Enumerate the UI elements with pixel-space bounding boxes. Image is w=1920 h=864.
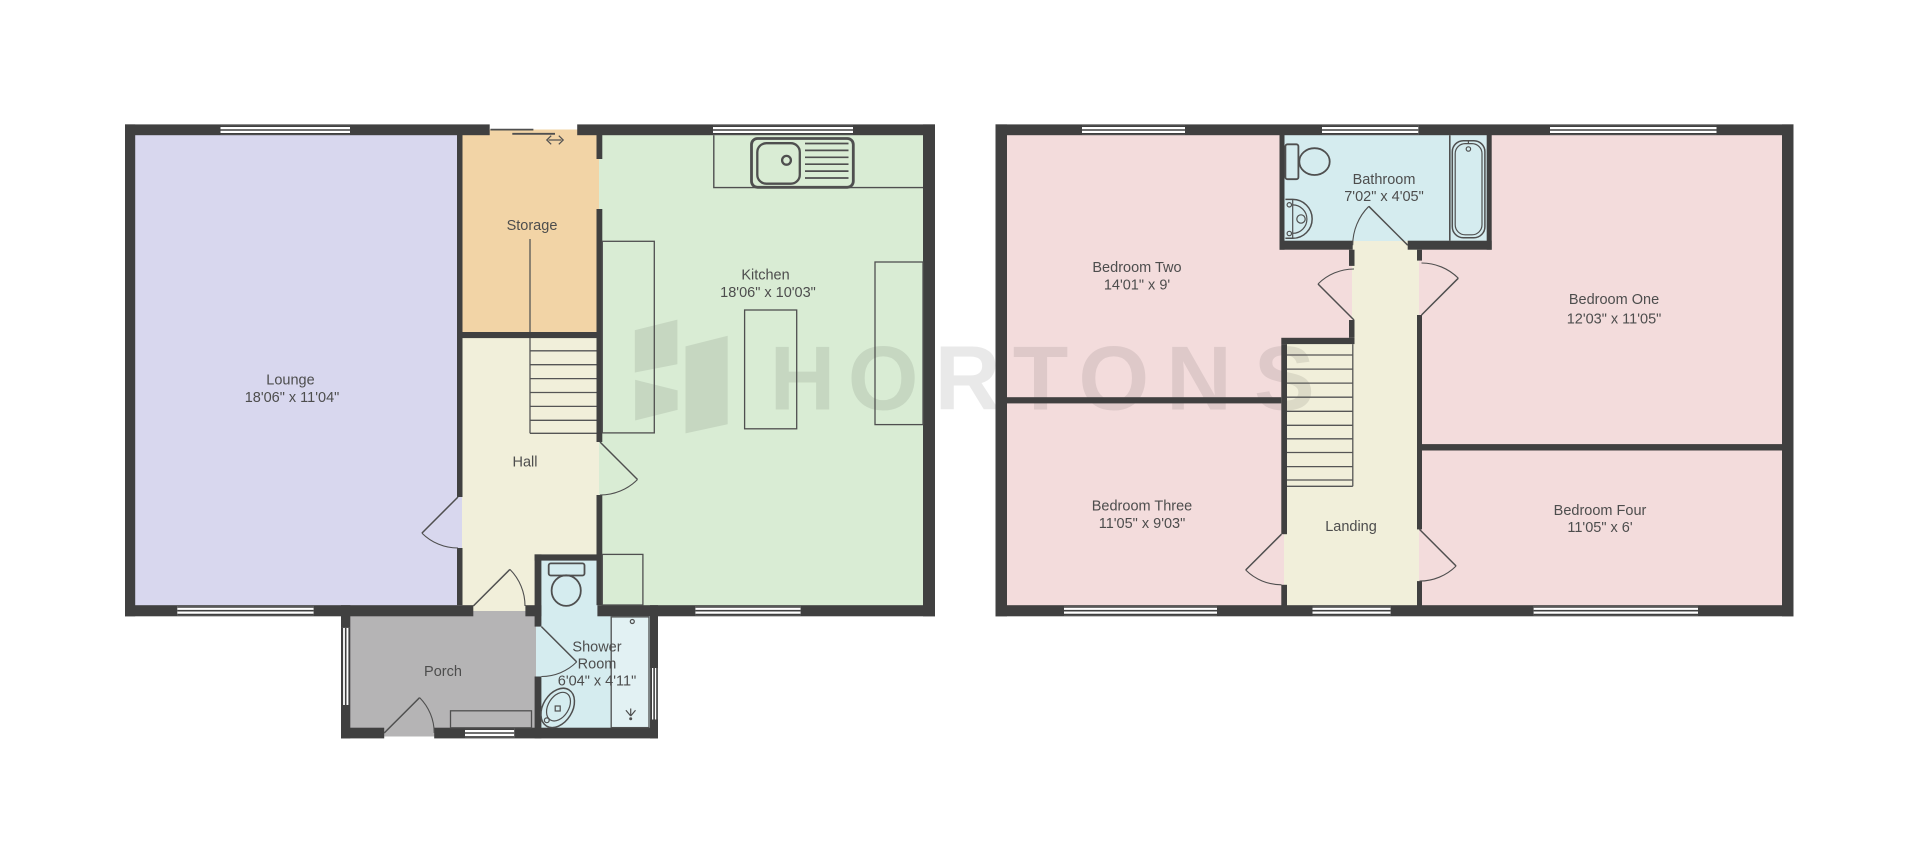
svg-text:H: H <box>770 329 836 430</box>
svg-text:18'06" x 10'03": 18'06" x 10'03" <box>720 285 816 301</box>
svg-text:R: R <box>935 329 1001 430</box>
svg-text:Room: Room <box>578 657 617 673</box>
svg-text:O: O <box>848 329 919 430</box>
svg-text:Lounge: Lounge <box>266 373 314 389</box>
svg-text:O: O <box>1078 329 1149 430</box>
svg-text:11'05" x 9'03": 11'05" x 9'03" <box>1099 516 1186 532</box>
svg-text:N: N <box>1166 329 1232 430</box>
svg-text:Storage: Storage <box>507 218 558 234</box>
svg-text:12'03" x 11'05": 12'03" x 11'05" <box>1567 312 1662 328</box>
svg-text:Bedroom Four: Bedroom Four <box>1554 503 1647 519</box>
svg-text:Bedroom One: Bedroom One <box>1569 292 1659 308</box>
svg-text:Porch: Porch <box>424 664 462 680</box>
svg-text:11'05" x 6': 11'05" x 6' <box>1567 520 1632 536</box>
svg-text:14'01" x 9': 14'01" x 9' <box>1104 278 1171 294</box>
svg-text:Hall: Hall <box>513 454 538 470</box>
svg-text:Shower: Shower <box>572 640 621 656</box>
svg-text:6'04" x 4'11": 6'04" x 4'11" <box>558 674 636 690</box>
svg-text:Kitchen: Kitchen <box>741 267 789 283</box>
svg-text:Bedroom Three: Bedroom Three <box>1092 499 1192 515</box>
svg-text:Bathroom: Bathroom <box>1353 172 1416 188</box>
svg-text:18'06" x 11'04": 18'06" x 11'04" <box>245 390 340 406</box>
svg-text:7'02" x 4'05": 7'02" x 4'05" <box>1344 189 1424 205</box>
svg-text:T: T <box>1013 329 1069 430</box>
svg-text:Bedroom Two: Bedroom Two <box>1092 260 1181 276</box>
svg-text:Landing: Landing <box>1325 519 1377 535</box>
